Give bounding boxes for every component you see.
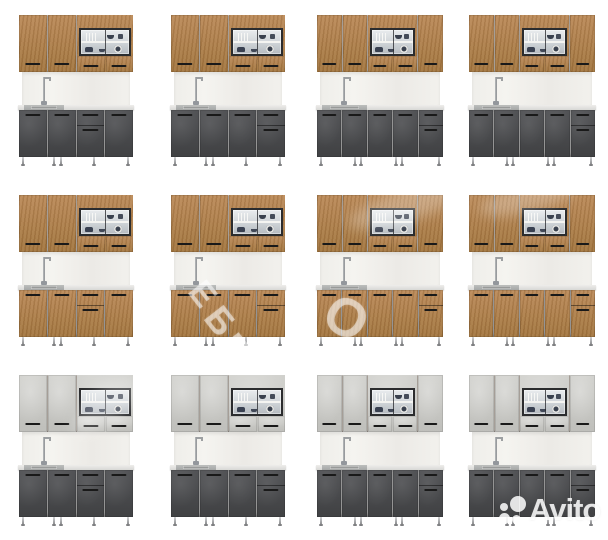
- lower-door: [494, 290, 518, 337]
- under-glass-doors: [77, 56, 133, 72]
- legs: [171, 157, 285, 166]
- chrome-leg-icon: [360, 517, 362, 524]
- faucet-spout-tip: [501, 437, 503, 441]
- mug: [404, 394, 409, 399]
- door-handle: [373, 114, 386, 116]
- dark-bowl: [547, 215, 554, 219]
- door-handle: [112, 114, 127, 116]
- chrome-leg-icon: [512, 157, 514, 164]
- lower-door: [257, 290, 285, 337]
- under-glass-doors: [368, 56, 417, 72]
- door-handle: [54, 474, 69, 476]
- plate-stack: [86, 33, 97, 41]
- drawer-divider: [77, 305, 105, 306]
- plate-stack: [528, 393, 539, 401]
- chrome-leg-icon: [22, 517, 24, 524]
- chrome-leg-icon: [360, 337, 362, 344]
- kitchen-photo-cell: [0, 0, 152, 180]
- lower-door: [393, 290, 417, 337]
- backsplash-panel: [174, 72, 282, 105]
- display-plate: [114, 225, 122, 233]
- chrome-leg-icon: [93, 517, 95, 524]
- door-handle: [112, 425, 127, 427]
- glass-door-seam: [105, 30, 106, 54]
- drawer-divider: [77, 485, 105, 486]
- lower-door: [19, 470, 47, 517]
- chrome-leg-icon: [174, 157, 176, 164]
- under-glass-doors: [368, 416, 417, 432]
- glass-door-seam: [545, 390, 546, 414]
- door-handle: [264, 245, 279, 247]
- chrome-leg-icon: [438, 337, 440, 344]
- dark-bowl: [259, 35, 266, 39]
- chrome-leg-icon: [553, 157, 555, 164]
- backsplash-panel: [22, 72, 130, 105]
- chrome-leg-icon: [360, 157, 362, 164]
- chrome-leg-icon: [506, 157, 508, 164]
- lower-door: [19, 290, 47, 337]
- door-handle: [177, 114, 192, 116]
- lower-door: [393, 470, 417, 517]
- wood-strip: [520, 375, 569, 388]
- upper-small-door: [520, 56, 544, 72]
- chrome-leg-icon: [212, 517, 214, 524]
- door-handle: [576, 474, 589, 476]
- drawer-handle: [576, 309, 589, 311]
- upper-small-door: [545, 56, 569, 72]
- upper-small-door: [393, 236, 417, 252]
- door-handle: [526, 65, 539, 67]
- chrome-leg-icon: [553, 337, 555, 344]
- chrome-leg-icon: [22, 337, 24, 344]
- lower-door: [171, 470, 199, 517]
- upper-door: [48, 195, 76, 252]
- upper-small-door: [368, 56, 392, 72]
- door-handle: [264, 474, 279, 476]
- chrome-leg-icon: [547, 157, 549, 164]
- mug: [404, 34, 409, 39]
- lower-door: [229, 470, 257, 517]
- plate-stack: [376, 393, 387, 401]
- lower-door: [469, 470, 493, 517]
- under-glass-doors: [520, 416, 569, 432]
- glass-display: [231, 208, 283, 236]
- chrome-leg-icon: [438, 517, 440, 524]
- door-handle: [264, 425, 279, 427]
- wood-strip: [77, 15, 133, 28]
- upper-door: [343, 15, 368, 72]
- legs: [19, 337, 133, 346]
- chrome-leg-icon: [174, 337, 176, 344]
- plate-stack: [376, 33, 387, 41]
- lower-door: [105, 290, 133, 337]
- door-handle: [264, 65, 279, 67]
- lower-door: [520, 110, 544, 157]
- lower-door: [571, 290, 595, 337]
- chrome-leg-icon: [60, 517, 62, 524]
- lower-door: [77, 290, 105, 337]
- upper-small-door: [368, 236, 392, 252]
- faucet-spout-tip: [349, 77, 351, 81]
- door-handle: [551, 474, 564, 476]
- lower-door: [520, 290, 544, 337]
- kitchen-set: [19, 15, 133, 166]
- lower-door: [545, 110, 569, 157]
- door-handle: [235, 474, 250, 476]
- door-handle: [235, 114, 250, 116]
- glass-door-seam: [257, 390, 258, 414]
- upper-door: [171, 195, 199, 252]
- glass-display-cabinet: [229, 15, 285, 72]
- legs: [317, 517, 443, 526]
- door-handle: [348, 423, 362, 425]
- door-handle: [112, 474, 127, 476]
- legs: [19, 517, 133, 526]
- door-handle: [424, 474, 437, 476]
- backsplash-panel: [320, 72, 440, 105]
- dark-bowl: [259, 215, 266, 219]
- chrome-leg-icon: [279, 157, 281, 164]
- lower-door: [494, 110, 518, 157]
- door-handle: [112, 65, 127, 67]
- backsplash-panel: [22, 432, 130, 465]
- chrome-leg-icon: [438, 157, 440, 164]
- upper-door: [171, 375, 199, 432]
- door-handle: [235, 425, 250, 427]
- door-handle: [551, 114, 564, 116]
- door-handle: [399, 245, 412, 247]
- kettle: [527, 47, 535, 52]
- sink-basin: [482, 106, 511, 109]
- upper-small-door: [106, 56, 134, 72]
- faucet-spout-tip: [201, 77, 203, 81]
- drawer-divider: [571, 125, 595, 126]
- lower-door: [317, 470, 341, 517]
- upper-small-door: [258, 416, 286, 432]
- upper-door: [495, 375, 520, 432]
- display-plate: [266, 45, 274, 53]
- door-handle: [83, 65, 98, 67]
- wood-strip: [229, 375, 285, 388]
- lower-door: [200, 470, 228, 517]
- lower-door: [105, 470, 133, 517]
- kettle: [375, 47, 383, 52]
- door-handle: [399, 65, 412, 67]
- kettle: [375, 407, 383, 412]
- kettle: [237, 227, 245, 232]
- door-handle: [177, 63, 192, 65]
- door-handle: [551, 245, 564, 247]
- door-handle: [500, 474, 513, 476]
- upper-cabinets: [469, 15, 595, 72]
- door-handle: [25, 474, 40, 476]
- upper-cabinets: [469, 375, 595, 432]
- door-handle: [475, 243, 489, 245]
- legs: [19, 157, 133, 166]
- drawer-handle: [424, 129, 437, 131]
- upper-door: [570, 195, 595, 252]
- glass-display: [370, 28, 415, 56]
- lower-door: [342, 470, 366, 517]
- sink-basin: [31, 466, 57, 469]
- faucet-pipe: [495, 437, 497, 463]
- wood-strip: [368, 375, 417, 388]
- dark-bowl: [107, 35, 114, 39]
- chrome-leg-icon: [279, 517, 281, 524]
- glass-door-seam: [257, 30, 258, 54]
- faucet-pipe: [495, 257, 497, 283]
- glass-display-cabinet: [368, 375, 417, 432]
- upper-door: [570, 15, 595, 72]
- upper-small-door: [520, 236, 544, 252]
- drawer-handle: [576, 489, 589, 491]
- door-handle: [475, 63, 489, 65]
- avito-watermark: Avito: [499, 496, 600, 525]
- kettle: [237, 47, 245, 52]
- chrome-leg-icon: [205, 337, 207, 344]
- kettle: [527, 227, 535, 232]
- lower-door: [571, 110, 595, 157]
- drawer-handle: [83, 129, 98, 131]
- chrome-leg-icon: [590, 337, 592, 344]
- upper-small-door: [545, 236, 569, 252]
- faucet-pipe: [343, 257, 345, 283]
- lower-cabinets: [19, 110, 133, 157]
- chrome-leg-icon: [174, 517, 176, 524]
- avito-logo-icon: [499, 496, 527, 525]
- glass-door-seam: [257, 210, 258, 234]
- door-handle: [348, 63, 362, 65]
- door-handle: [206, 423, 221, 425]
- door-handle: [424, 63, 438, 65]
- door-handle: [206, 114, 221, 116]
- dark-bowl: [547, 35, 554, 39]
- lower-door: [257, 110, 285, 157]
- lower-door: [105, 110, 133, 157]
- faucet-pipe: [43, 77, 45, 103]
- kitchen-photo-cell: [152, 180, 304, 360]
- drawer-divider: [257, 305, 285, 306]
- door-handle: [576, 294, 589, 296]
- door-handle: [54, 294, 69, 296]
- door-handle: [576, 423, 590, 425]
- chrome-leg-icon: [60, 157, 62, 164]
- door-handle: [551, 425, 564, 427]
- dark-bowl: [259, 395, 266, 399]
- lower-door: [257, 470, 285, 517]
- door-handle: [526, 425, 539, 427]
- door-handle: [264, 294, 279, 296]
- upper-door: [570, 375, 595, 432]
- chrome-leg-icon: [127, 337, 129, 344]
- door-handle: [83, 114, 98, 116]
- door-handle: [348, 114, 361, 116]
- lower-cabinets: [19, 290, 133, 337]
- faucet-pipe: [195, 77, 197, 103]
- chrome-leg-icon: [320, 517, 322, 524]
- mug: [270, 214, 275, 219]
- sink-basin: [183, 466, 209, 469]
- faucet-spout-tip: [201, 257, 203, 261]
- kettle: [237, 407, 245, 412]
- kitchen-photo-cell: [304, 0, 456, 180]
- chrome-leg-icon: [472, 157, 474, 164]
- lower-door: [48, 290, 76, 337]
- wood-strip: [368, 15, 417, 28]
- glass-display-cabinet: [77, 15, 133, 72]
- faucet-pipe: [195, 257, 197, 283]
- upper-door: [19, 15, 47, 72]
- lower-cabinets: [469, 290, 595, 337]
- kitchen-set: [171, 375, 285, 526]
- drawer-divider: [419, 125, 443, 126]
- kitchen-set: [317, 15, 443, 166]
- legs: [171, 517, 285, 526]
- lower-cabinets: [171, 470, 285, 517]
- door-handle: [475, 423, 489, 425]
- door-handle: [424, 114, 437, 116]
- door-handle: [500, 423, 514, 425]
- upper-small-door: [229, 416, 257, 432]
- door-handle: [25, 63, 40, 65]
- lower-cabinets: [19, 470, 133, 517]
- door-handle: [235, 245, 250, 247]
- upper-door: [200, 375, 228, 432]
- faucet-pipe: [43, 437, 45, 463]
- faucet-spout-tip: [49, 437, 51, 441]
- chrome-leg-icon: [53, 337, 55, 344]
- door-handle: [399, 114, 412, 116]
- mug: [270, 394, 275, 399]
- upper-small-door: [229, 56, 257, 72]
- drawer-handle: [83, 489, 98, 491]
- door-handle: [500, 63, 514, 65]
- display-plate: [266, 405, 274, 413]
- door-handle: [323, 423, 337, 425]
- chrome-leg-icon: [395, 337, 397, 344]
- drawer-divider: [419, 485, 443, 486]
- upper-small-door: [106, 236, 134, 252]
- upper-cabinets: [171, 15, 285, 72]
- glass-display: [79, 28, 131, 56]
- kitchen-photo-cell: [152, 360, 304, 540]
- mug: [556, 214, 561, 219]
- upper-cabinets: [317, 375, 443, 432]
- kitchen-photo-cell: [0, 180, 152, 360]
- faucet-pipe: [343, 77, 345, 103]
- backsplash-panel: [22, 252, 130, 285]
- chrome-leg-icon: [506, 337, 508, 344]
- backsplash-panel: [320, 252, 440, 285]
- dark-bowl: [395, 395, 402, 399]
- lower-door: [317, 110, 341, 157]
- faucet-pipe: [43, 257, 45, 283]
- upper-door: [469, 375, 494, 432]
- mug: [556, 34, 561, 39]
- chrome-leg-icon: [127, 517, 129, 524]
- chrome-leg-icon: [279, 337, 281, 344]
- door-handle: [374, 245, 387, 247]
- chrome-leg-icon: [395, 517, 397, 524]
- chrome-leg-icon: [93, 157, 95, 164]
- door-handle: [474, 474, 487, 476]
- door-handle: [322, 114, 335, 116]
- kitchen-photo-cell: [304, 360, 456, 540]
- mug: [118, 34, 123, 39]
- door-handle: [348, 243, 362, 245]
- lower-door: [469, 110, 493, 157]
- glass-door-seam: [545, 210, 546, 234]
- chrome-leg-icon: [401, 157, 403, 164]
- legs: [469, 157, 595, 166]
- door-handle: [264, 114, 279, 116]
- sink-basin: [482, 466, 511, 469]
- upper-small-door: [258, 56, 286, 72]
- drawer-divider: [77, 125, 105, 126]
- door-handle: [399, 474, 412, 476]
- legs: [317, 157, 443, 166]
- upper-door: [317, 15, 342, 72]
- door-handle: [54, 114, 69, 116]
- upper-small-door: [393, 416, 417, 432]
- chrome-leg-icon: [401, 337, 403, 344]
- upper-small-door: [258, 236, 286, 252]
- faucet-spout-tip: [349, 257, 351, 261]
- upper-door: [418, 375, 443, 432]
- drawer-divider: [571, 485, 595, 486]
- door-handle: [373, 474, 386, 476]
- door-handle: [25, 114, 40, 116]
- mug: [270, 34, 275, 39]
- drawer-handle: [264, 489, 279, 491]
- door-handle: [399, 294, 412, 296]
- upper-cabinets: [171, 195, 285, 252]
- lower-door: [545, 290, 569, 337]
- chrome-leg-icon: [212, 157, 214, 164]
- wood-strip: [77, 195, 133, 208]
- glass-display: [231, 28, 283, 56]
- door-handle: [83, 474, 98, 476]
- backsplash-panel: [174, 432, 282, 465]
- door-handle: [374, 425, 387, 427]
- door-handle: [576, 243, 590, 245]
- door-handle: [348, 474, 361, 476]
- glass-display: [231, 388, 283, 416]
- lower-door: [393, 110, 417, 157]
- door-handle: [500, 114, 513, 116]
- under-glass-doors: [229, 416, 285, 432]
- photo-collage: ЕБЕО Avito: [0, 0, 608, 540]
- glass-display: [370, 388, 415, 416]
- sink-basin: [330, 106, 359, 109]
- upper-door: [317, 375, 342, 432]
- drawer-handle: [576, 129, 589, 131]
- door-handle: [526, 245, 539, 247]
- lower-door: [171, 110, 199, 157]
- door-handle: [235, 65, 250, 67]
- door-handle: [399, 425, 412, 427]
- display-plate: [400, 45, 408, 53]
- door-handle: [177, 243, 192, 245]
- door-handle: [576, 114, 589, 116]
- under-glass-doors: [229, 236, 285, 252]
- chrome-leg-icon: [354, 157, 356, 164]
- upper-small-door: [393, 56, 417, 72]
- glass-door-seam: [105, 210, 106, 234]
- door-handle: [206, 474, 221, 476]
- lower-door: [229, 110, 257, 157]
- plate-stack: [238, 393, 249, 401]
